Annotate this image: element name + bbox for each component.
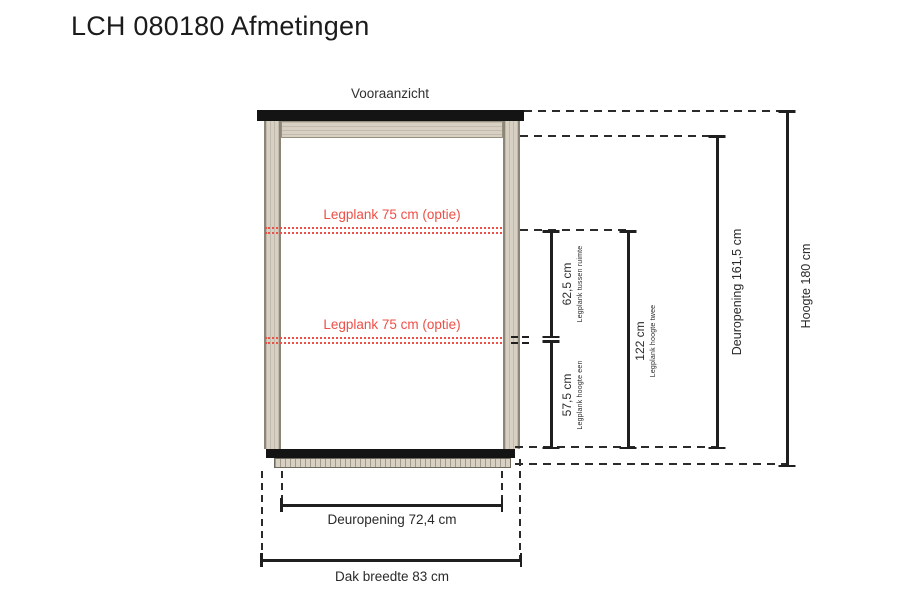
dim-line-total-height (786, 111, 789, 466)
base-plank (274, 458, 511, 468)
dim-line-shelf-gap (550, 231, 553, 337)
shelf-1-label: Legplank 75 cm (optie) (292, 207, 492, 222)
shelf-2-label: Legplank 75 cm (optie) (292, 317, 492, 332)
shelf-2-break-mark (511, 342, 531, 344)
extension-line-door-top (520, 135, 721, 137)
dim-value: 62,5 cm (561, 246, 574, 323)
extension-line-base-bottom (515, 463, 791, 465)
bottom-bar (266, 449, 515, 458)
dim-value: 122 cm (634, 305, 647, 378)
shelf-2-break-mark (511, 336, 531, 338)
extension-line-shelf-1 (520, 229, 632, 231)
dim-line-shelf-two-height (627, 231, 630, 448)
left-post (264, 121, 281, 449)
right-post (503, 121, 520, 449)
dim-caption: Legplank hoogte een (577, 360, 585, 429)
dim-label-shelf-gap: 62,5 cm Legplank tussen ruimte (561, 246, 585, 323)
dim-caption: Legplank hoogte twee (650, 305, 658, 378)
dim-label-door-width: Deuropening 72,4 cm (262, 512, 522, 527)
dim-line-shelf-one-height (550, 341, 553, 448)
dim-line-roof-width (261, 559, 521, 562)
extension-line-roof-right (519, 459, 521, 562)
shelf-1-dotted-line (265, 227, 502, 234)
dim-label-roof-width: Dak breedte 83 cm (262, 569, 522, 584)
dim-label-shelf-one-height: 57,5 cm Legplank hoogte een (561, 360, 585, 429)
dimension-diagram: LCH 080180 Afmetingen Vooraanzicht Legpl… (0, 0, 900, 600)
dim-value: 57,5 cm (561, 360, 574, 429)
dim-label-shelf-two-height: 122 cm Legplank hoogte twee (634, 305, 658, 378)
page-title: LCH 080180 Afmetingen (71, 11, 369, 42)
top-beam (281, 121, 503, 138)
roof-bar (257, 110, 524, 121)
dim-caption: Legplank tussen ruimte (577, 246, 585, 323)
dim-label-door-height: Deuropening 161,5 cm (730, 229, 744, 355)
interior-panel (283, 138, 503, 449)
view-label: Vooraanzicht (300, 86, 480, 101)
shelf-2-dotted-line (265, 337, 502, 344)
dim-line-door-width (281, 504, 502, 507)
dim-line-door-height (716, 136, 719, 448)
dim-label-total-height: Hoogte 180 cm (799, 244, 813, 329)
extension-line-roof-top (524, 110, 790, 112)
